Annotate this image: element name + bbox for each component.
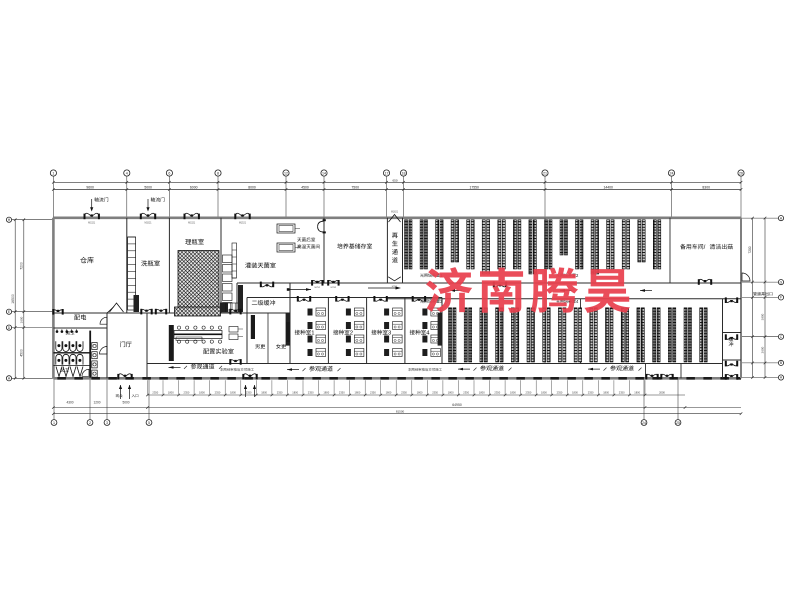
svg-text:4500: 4500: [301, 185, 309, 189]
svg-text:M1821: M1821: [391, 212, 399, 214]
svg-text:26: 26: [739, 171, 743, 175]
svg-text:2600: 2600: [761, 346, 765, 353]
svg-text:12: 12: [284, 171, 288, 175]
svg-text:2: 2: [350, 330, 353, 336]
svg-text:81500: 81500: [396, 409, 405, 413]
svg-text:9600: 9600: [86, 185, 94, 189]
svg-text:2350: 2350: [432, 390, 438, 394]
svg-text:1800: 1800: [355, 390, 361, 394]
svg-text:3900: 3900: [761, 313, 765, 320]
svg-text:1800: 1800: [603, 390, 609, 394]
svg-text:24: 24: [642, 421, 646, 425]
svg-text:17550: 17550: [469, 185, 479, 189]
svg-text:1800: 1800: [572, 390, 578, 394]
svg-text:2350: 2350: [494, 390, 500, 394]
svg-text:F: F: [780, 296, 782, 300]
svg-text:1800: 1800: [634, 390, 640, 394]
svg-text:M752: M752: [331, 287, 337, 289]
svg-text:1800: 1800: [292, 390, 298, 394]
svg-text:6: 6: [168, 171, 170, 175]
svg-text:1600: 1600: [20, 316, 24, 323]
svg-text:1800: 1800: [230, 390, 236, 394]
svg-text:2350: 2350: [339, 390, 345, 394]
svg-text:1: 1: [52, 171, 54, 175]
svg-text:1800: 1800: [448, 390, 454, 394]
svg-text:8: 8: [217, 171, 219, 175]
svg-text:2350: 2350: [184, 390, 190, 394]
svg-text:2350: 2350: [246, 390, 252, 394]
svg-text:2350: 2350: [152, 390, 158, 394]
svg-text:8300: 8300: [702, 185, 710, 189]
svg-text:650: 650: [392, 178, 397, 182]
svg-text:14: 14: [322, 171, 326, 175]
svg-text:7500: 7500: [351, 185, 359, 189]
svg-text:2350: 2350: [215, 390, 221, 394]
svg-text:16500: 16500: [11, 294, 15, 304]
svg-text:8000: 8000: [248, 185, 256, 189]
svg-text:25: 25: [676, 421, 680, 425]
svg-text:1800: 1800: [323, 390, 329, 394]
svg-text:6000: 6000: [190, 185, 198, 189]
svg-text:2: 2: [89, 421, 91, 425]
svg-text:4300: 4300: [66, 401, 73, 405]
svg-text:G: G: [780, 280, 783, 284]
svg-text:4500: 4500: [20, 349, 24, 357]
svg-text:2000: 2000: [659, 390, 665, 394]
svg-text:1: 1: [311, 330, 314, 336]
svg-text:2350: 2350: [401, 390, 407, 394]
svg-text:/: /: [704, 244, 706, 251]
svg-text:5: 5: [148, 421, 150, 425]
svg-text:1800: 1800: [386, 390, 392, 394]
svg-text:2350: 2350: [308, 390, 314, 394]
svg-text:7200: 7200: [748, 246, 752, 253]
svg-text:2350: 2350: [277, 390, 283, 394]
svg-text:7200: 7200: [20, 262, 24, 270]
svg-text:3: 3: [106, 421, 108, 425]
svg-text:1800: 1800: [479, 390, 485, 394]
svg-text:2350: 2350: [463, 390, 469, 394]
svg-text:1800: 1800: [541, 390, 547, 394]
svg-text:M1521: M1521: [239, 222, 247, 224]
svg-text:1800: 1800: [261, 390, 267, 394]
svg-text:2350: 2350: [557, 390, 563, 394]
svg-text:2350: 2350: [619, 390, 625, 394]
svg-text:21: 21: [543, 171, 547, 175]
svg-text:64950: 64950: [452, 403, 462, 407]
svg-text:1800: 1800: [417, 390, 423, 394]
svg-text:1200: 1200: [93, 401, 100, 405]
svg-text:M1521: M1521: [188, 222, 196, 224]
svg-text:1800: 1800: [168, 390, 174, 394]
svg-text:14400: 14400: [603, 185, 613, 189]
svg-text:2350: 2350: [588, 390, 594, 394]
svg-text:24: 24: [670, 171, 674, 175]
svg-text:1: 1: [53, 421, 55, 425]
svg-text:4: 4: [126, 171, 128, 175]
svg-text:2350: 2350: [526, 390, 532, 394]
svg-text:M1521: M1521: [88, 222, 96, 224]
svg-text:18: 18: [402, 171, 406, 175]
svg-text:2350: 2350: [370, 390, 376, 394]
svg-text:5000: 5000: [144, 185, 152, 189]
svg-text:M752: M752: [315, 287, 321, 289]
svg-text:1800: 1800: [510, 390, 516, 394]
svg-text:5000: 5000: [122, 401, 129, 405]
svg-text:17: 17: [385, 171, 389, 175]
svg-text:1800: 1800: [199, 390, 205, 394]
svg-text:M1521: M1521: [144, 222, 152, 224]
